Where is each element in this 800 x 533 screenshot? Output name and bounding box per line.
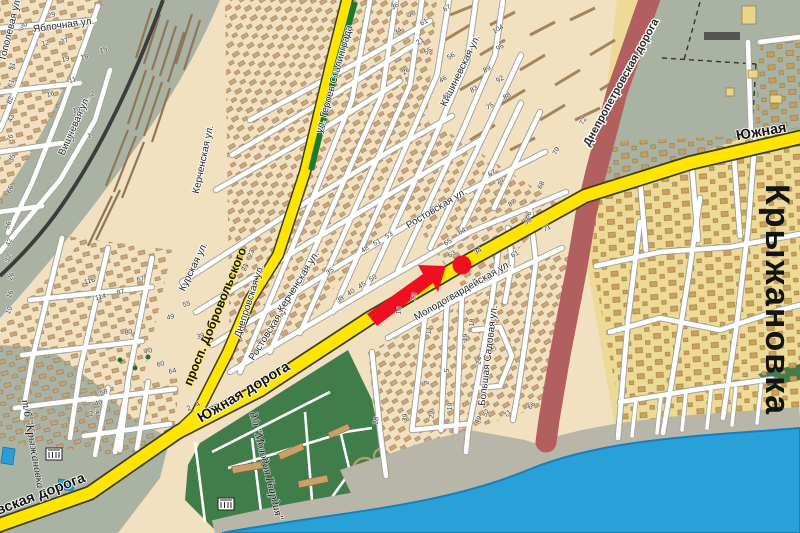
street-label: Крыжановка	[758, 184, 796, 416]
house-number: 19	[461, 333, 469, 342]
landmark-icon	[46, 448, 62, 460]
house-number: 23	[410, 292, 418, 301]
landmark-icon	[218, 498, 234, 510]
house-number: 16	[395, 306, 403, 315]
marker-dot	[453, 256, 472, 275]
house-number: 24	[475, 356, 483, 365]
house-number: 28	[372, 416, 380, 425]
house-number: 11	[425, 326, 433, 334]
dark-building	[704, 32, 740, 40]
house-number: 39	[401, 413, 409, 422]
city-map[interactable]: Южная дорогаЮжнаяНиколаевская дорогапрос…	[0, 0, 800, 533]
house-number: 19	[446, 402, 454, 411]
map-canvas[interactable]: Южная дорогаЮжнаяНиколаевская дорогапрос…	[0, 0, 800, 533]
house-number: 18	[468, 318, 476, 327]
house-number: 22	[428, 410, 436, 419]
